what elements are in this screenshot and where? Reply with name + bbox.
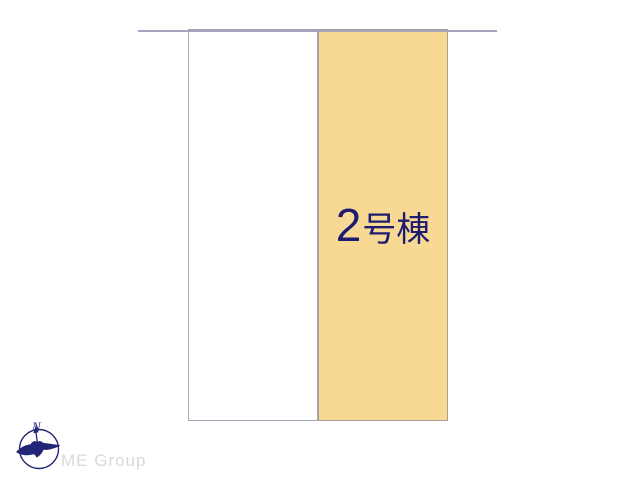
lot-label-suffix: 号棟 bbox=[362, 211, 430, 249]
lot-vacant bbox=[188, 29, 318, 421]
road-boundary-line bbox=[138, 30, 497, 32]
lot-building-2-label: 2号棟 bbox=[336, 202, 431, 248]
site-plan-canvas: 2号棟 N ME Group bbox=[0, 0, 640, 480]
bird-silhouette bbox=[16, 441, 61, 457]
lot-label-number: 2 bbox=[336, 199, 363, 251]
lot-building-2: 2号棟 bbox=[318, 29, 448, 421]
me-group-compass-bird-logo-icon: N bbox=[13, 416, 65, 472]
compass-north-letter: N bbox=[31, 419, 42, 434]
company-name: ME Group bbox=[61, 451, 146, 471]
